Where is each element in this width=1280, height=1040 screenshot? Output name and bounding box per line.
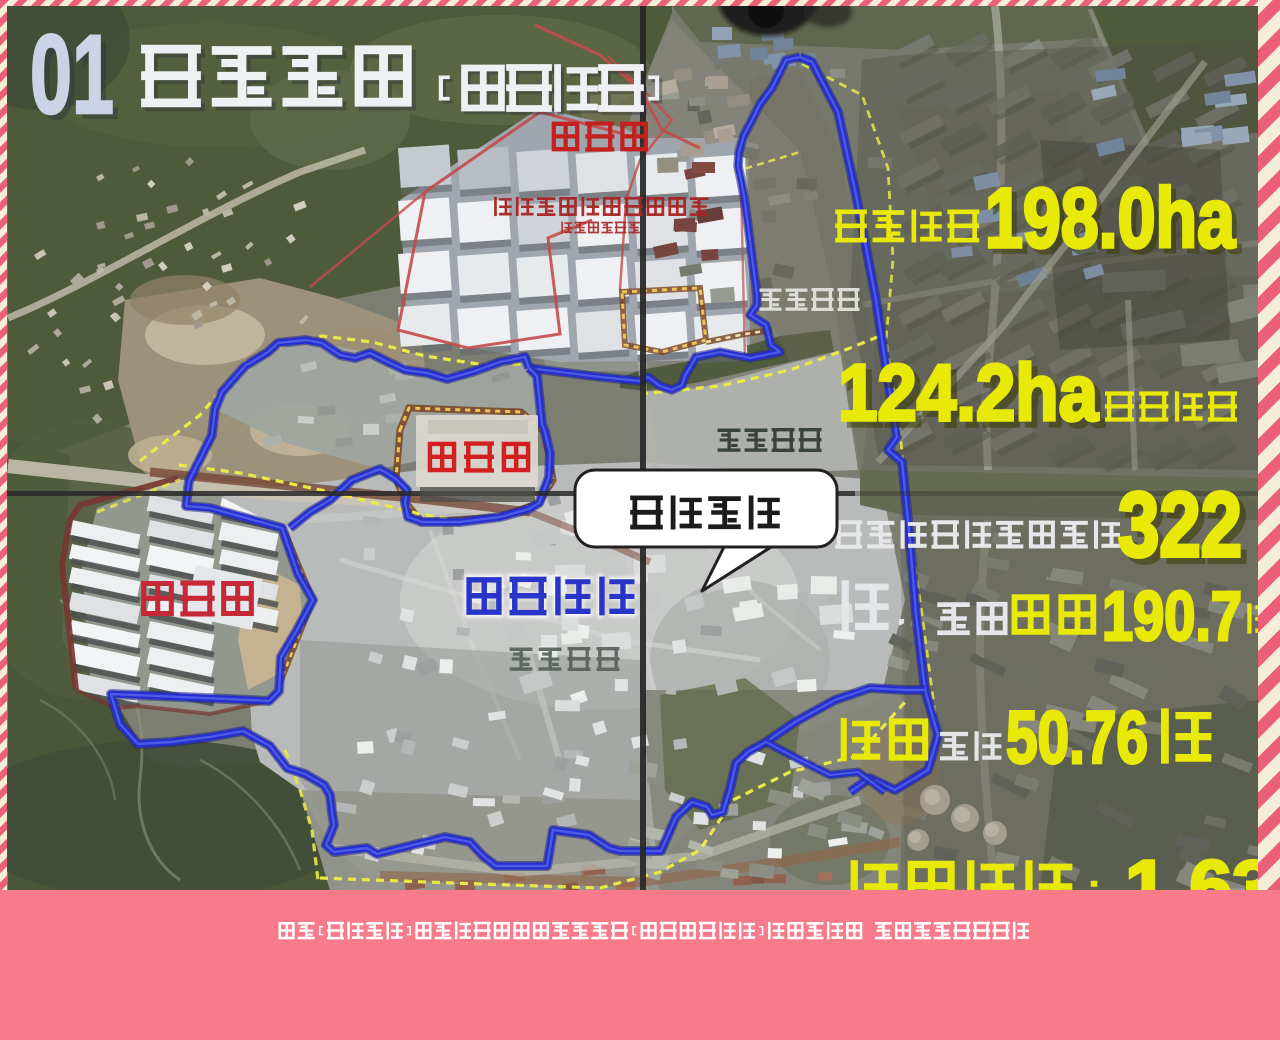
svg-text:124.2ha: 124.2ha xyxy=(838,348,1098,437)
svg-text:322: 322 xyxy=(1118,474,1242,576)
svg-text:50.76: 50.76 xyxy=(1006,696,1148,779)
svg-text:198.0ha: 198.0ha xyxy=(985,171,1236,265)
svg-text:190.7: 190.7 xyxy=(1102,577,1242,655)
svg-text:01: 01 xyxy=(30,12,114,137)
